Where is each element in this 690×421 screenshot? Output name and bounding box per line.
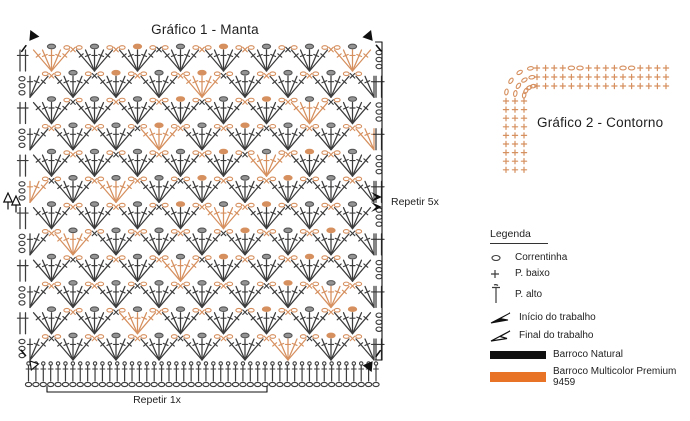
- between-fan-chain-group: [128, 230, 146, 236]
- between-fan-chain-group: [322, 256, 340, 262]
- between-fan-chain-group: [85, 282, 103, 288]
- between-fan-chain-group: [64, 46, 82, 52]
- work-start-arrow-top-right: [364, 31, 381, 51]
- between-fan-chain-group: [257, 177, 275, 183]
- between-fan-chain-group: [128, 282, 146, 288]
- between-fan-chain-group: [128, 125, 146, 131]
- repeat-marker-arrows: [4, 193, 20, 212]
- legend-item-single-crochet: P. baixo: [490, 268, 690, 279]
- between-fan-chain-group: [300, 72, 318, 78]
- work-start-arrow-top-left: [22, 31, 39, 51]
- between-fan-chain-group: [107, 46, 125, 52]
- between-fan-chain-group: [85, 335, 103, 341]
- between-fan-chain-group: [343, 282, 361, 288]
- foundation-row: [25, 362, 379, 387]
- between-fan-chain-group: [85, 177, 103, 183]
- between-fan-chain-group: [64, 256, 82, 262]
- legend-item-label: P. alto: [515, 289, 542, 300]
- repeat-1x-label: Repetir 1x: [47, 394, 267, 406]
- legend-item-label: Final do trabalho: [519, 330, 594, 341]
- between-fan-chain-group: [257, 335, 275, 341]
- pattern-row: [17, 254, 382, 281]
- legend-item-chain: Correntinha: [490, 252, 690, 263]
- between-fan-chain-group: [343, 125, 361, 131]
- between-fan-chain-group: [279, 98, 297, 104]
- grafico2-title: Gráfico 2 - Contorno: [537, 115, 663, 130]
- between-fan-chain-group: [300, 230, 318, 236]
- pattern-row: [17, 307, 382, 334]
- single-crochet-icon: [490, 269, 508, 279]
- pattern-row: [19, 333, 384, 360]
- between-fan-chain-group: [236, 46, 254, 52]
- between-fan-chain-group: [150, 308, 168, 314]
- legend: Legenda Correntinha P. baixo P. alto Iní…: [490, 228, 690, 393]
- tall-stitch-icon: [490, 284, 508, 304]
- between-fan-chain-group: [150, 98, 168, 104]
- between-fan-chain-group: [322, 308, 340, 314]
- between-fan-chain-group: [214, 125, 232, 131]
- work-end-arrow-icon: [490, 329, 512, 342]
- grafico1-manta-chart: [0, 0, 470, 421]
- between-fan-chain-group: [214, 177, 232, 183]
- between-fan-chain-group: [107, 203, 125, 209]
- between-fan-chain-group: [128, 335, 146, 341]
- chain-icon: [490, 254, 508, 262]
- between-fan-chain-group: [300, 177, 318, 183]
- between-fan-chain-group: [171, 72, 189, 78]
- crochet-pattern-sheet: Gráfico 1 - Manta Repetir 5x Repetir 1x …: [0, 0, 690, 421]
- between-fan-chain-group: [64, 98, 82, 104]
- between-fan-chain-group: [150, 46, 168, 52]
- between-fan-chain-group: [257, 282, 275, 288]
- between-fan-chain-group: [343, 177, 361, 183]
- between-fan-chain-group: [107, 98, 125, 104]
- pattern-row: [17, 149, 382, 176]
- between-fan-chain-group: [107, 308, 125, 314]
- legend-item-yarn-multicolor: Barroco Multicolor Premium 9459: [490, 366, 690, 388]
- legend-item-label: Início do trabalho: [519, 312, 596, 323]
- repeat-1x-bracket: [47, 387, 267, 393]
- between-fan-chain-group: [236, 151, 254, 157]
- between-fan-chain-group: [107, 151, 125, 157]
- legend-item-work-start: Início do trabalho: [490, 311, 690, 324]
- between-fan-chain-group: [279, 151, 297, 157]
- between-fan-chain-group: [85, 72, 103, 78]
- legend-item-label: P. baixo: [515, 268, 550, 279]
- between-fan-chain-group: [193, 98, 211, 104]
- pattern-row: [19, 281, 384, 308]
- between-fan-chain-group: [214, 335, 232, 341]
- legend-item-work-end: Final do trabalho: [490, 329, 690, 342]
- between-fan-chain-group: [42, 230, 60, 236]
- pattern-row: [17, 97, 382, 124]
- between-fan-chain-group: [257, 125, 275, 131]
- between-fan-chain-group: [236, 98, 254, 104]
- between-fan-chain-group: [279, 256, 297, 262]
- between-fan-chain-group: [64, 151, 82, 157]
- work-start-arrow-icon: [490, 311, 512, 324]
- pattern-row: [19, 123, 384, 150]
- between-fan-chain-group: [171, 282, 189, 288]
- between-fan-chain-group: [171, 177, 189, 183]
- between-fan-chain-group: [107, 256, 125, 262]
- between-fan-chain-group: [322, 151, 340, 157]
- between-fan-chain-group: [257, 230, 275, 236]
- between-fan-chain-group: [279, 203, 297, 209]
- between-fan-chain-group: [214, 230, 232, 236]
- between-fan-chain-group: [214, 72, 232, 78]
- between-fan-chain-group: [322, 98, 340, 104]
- pattern-row: [17, 44, 382, 71]
- between-fan-chain-group: [279, 46, 297, 52]
- between-fan-chain-group: [150, 256, 168, 262]
- between-fan-chain-group: [300, 282, 318, 288]
- between-fan-chain-group: [236, 203, 254, 209]
- legend-item-tall-stitch: P. alto: [490, 284, 690, 304]
- repeat-5x-label: Repetir 5x: [391, 196, 439, 208]
- between-fan-chain-group: [64, 308, 82, 314]
- between-fan-chain-group: [42, 72, 60, 78]
- between-fan-chain-group: [64, 203, 82, 209]
- between-fan-chain-group: [193, 256, 211, 262]
- pattern-row: [19, 176, 384, 203]
- between-fan-chain-group: [193, 308, 211, 314]
- between-fan-chain-group: [171, 230, 189, 236]
- between-fan-chain-group: [300, 125, 318, 131]
- between-fan-chain-group: [150, 151, 168, 157]
- orange-yarn-swatch: [490, 372, 546, 382]
- between-fan-chain-group: [236, 256, 254, 262]
- between-fan-chain-group: [193, 46, 211, 52]
- manta-pattern-rows: [17, 44, 384, 360]
- between-fan-chain-group: [42, 282, 60, 288]
- pattern-row: [19, 228, 384, 255]
- between-fan-chain-group: [322, 203, 340, 209]
- between-fan-chain-group: [343, 72, 361, 78]
- between-fan-chain-group: [236, 308, 254, 314]
- between-fan-chain-group: [85, 230, 103, 236]
- between-fan-chain-group: [171, 125, 189, 131]
- between-fan-chain-group: [300, 335, 318, 341]
- between-fan-chain-group: [128, 177, 146, 183]
- legend-item-label: Barroco Natural: [553, 349, 623, 360]
- legend-item-label: Barroco Multicolor Premium 9459: [553, 366, 690, 388]
- between-fan-chain-group: [343, 230, 361, 236]
- between-fan-chain-group: [42, 335, 60, 341]
- between-fan-chain-group: [85, 125, 103, 131]
- between-fan-chain-group: [150, 203, 168, 209]
- between-fan-chain-group: [128, 72, 146, 78]
- pattern-row: [17, 202, 382, 229]
- between-fan-chain-group: [343, 335, 361, 341]
- between-fan-chain-group: [42, 125, 60, 131]
- between-fan-chain-group: [42, 177, 60, 183]
- between-fan-chain-group: [193, 203, 211, 209]
- between-fan-chain-group: [193, 151, 211, 157]
- black-yarn-swatch: [490, 351, 546, 359]
- between-fan-chain-group: [171, 335, 189, 341]
- pattern-row: [19, 70, 384, 97]
- legend-title: Legenda: [490, 228, 548, 244]
- between-fan-chain-group: [279, 308, 297, 314]
- between-fan-chain-group: [257, 72, 275, 78]
- between-fan-chain-group: [322, 46, 340, 52]
- legend-item-yarn-natural: Barroco Natural: [490, 349, 690, 360]
- legend-item-label: Correntinha: [515, 252, 567, 263]
- between-fan-chain-group: [214, 282, 232, 288]
